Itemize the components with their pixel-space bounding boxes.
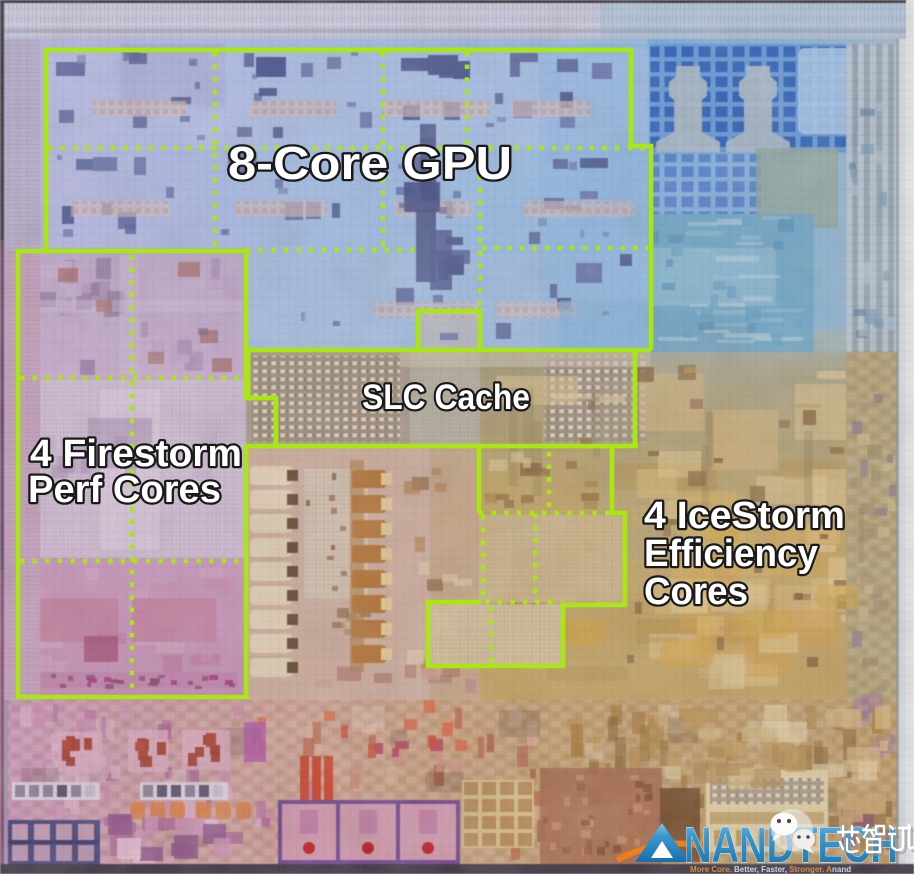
svg-text:8-Core GPU: 8-Core GPU bbox=[228, 137, 512, 189]
svg-text:Perf Cores: Perf Cores bbox=[28, 469, 221, 511]
svg-text:More Core. Better, Faster, Str: More Core. Better, Faster, Stronger. Ana… bbox=[690, 865, 851, 874]
svg-text:Cores: Cores bbox=[644, 571, 748, 613]
svg-text:4 IceStorm: 4 IceStorm bbox=[644, 495, 845, 537]
svg-text:Efficiency: Efficiency bbox=[644, 533, 818, 575]
svg-text:SLC Cache: SLC Cache bbox=[362, 378, 530, 417]
